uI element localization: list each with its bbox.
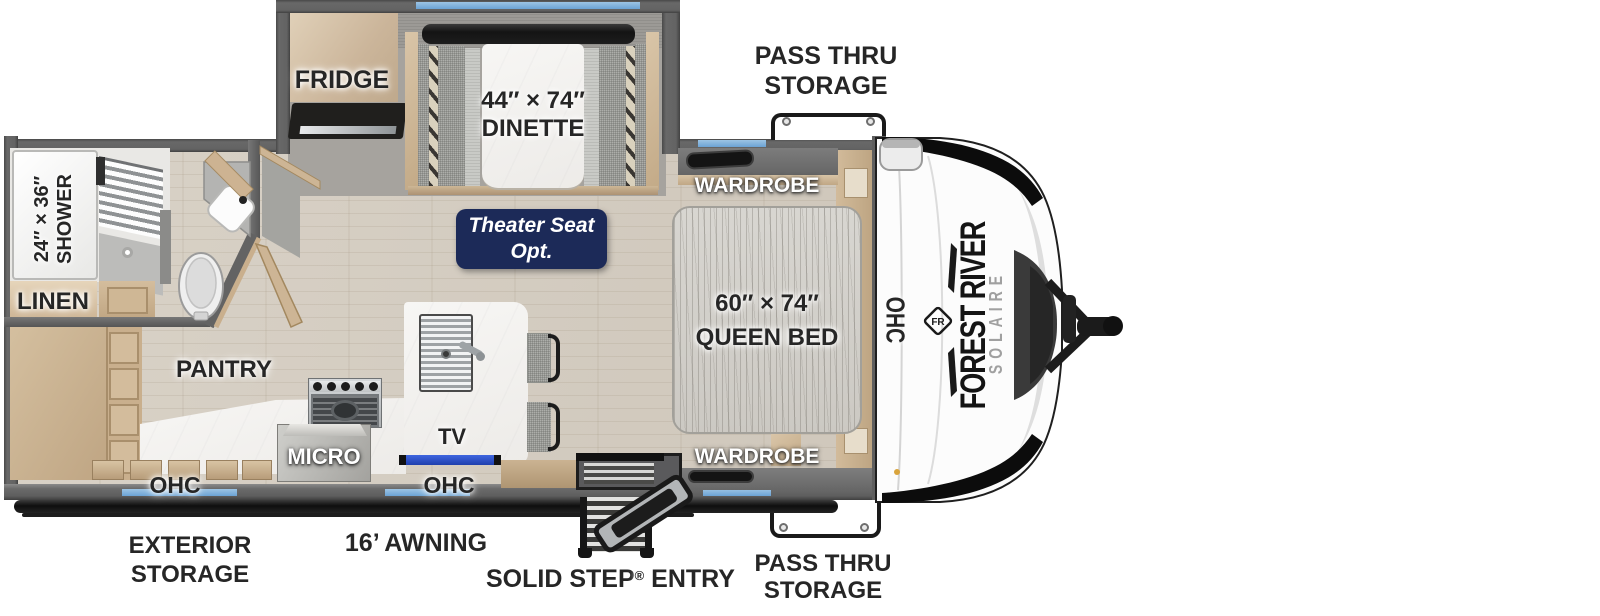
- svg-text:FR: FR: [931, 317, 945, 328]
